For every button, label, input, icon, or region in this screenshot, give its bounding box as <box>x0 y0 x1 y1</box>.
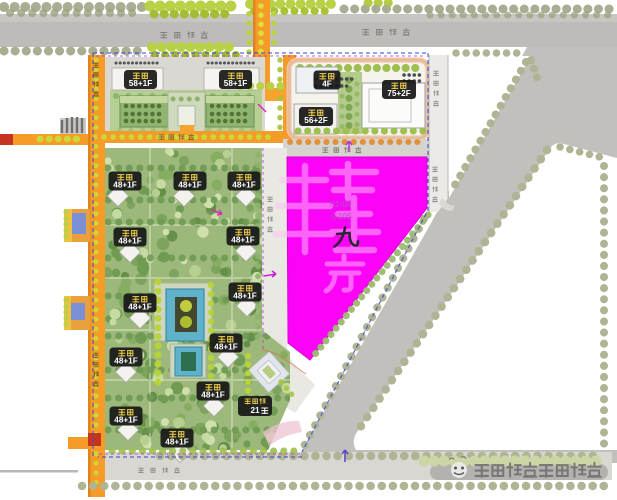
svg-text:48+1F: 48+1F <box>113 180 136 189</box>
svg-text:48+1F: 48+1F <box>128 302 151 311</box>
svg-text:48+1F: 48+1F <box>232 180 255 189</box>
svg-text:56+2F: 56+2F <box>304 116 327 125</box>
svg-text:58+1F: 58+1F <box>224 79 247 88</box>
svg-text:48+1F: 48+1F <box>114 415 137 424</box>
svg-text:48+1F: 48+1F <box>118 236 141 245</box>
svg-text:48+1F: 48+1F <box>178 180 201 189</box>
svg-text:4F: 4F <box>322 79 332 88</box>
svg-text:48+1F: 48+1F <box>233 291 256 300</box>
svg-text:75+2F: 75+2F <box>387 89 410 98</box>
svg-text:G105: G105 <box>331 211 352 221</box>
svg-text:01-04: 01-04 <box>330 199 352 209</box>
svg-text:48+1F: 48+1F <box>201 390 224 399</box>
svg-text:21: 21 <box>250 406 260 415</box>
svg-text:48+1F: 48+1F <box>114 356 137 365</box>
svg-text:48+1F: 48+1F <box>214 342 237 351</box>
svg-text:48+1F: 48+1F <box>165 437 188 446</box>
svg-text:58+1F: 58+1F <box>129 79 152 88</box>
svg-text:48+1F: 48+1F <box>231 235 254 244</box>
